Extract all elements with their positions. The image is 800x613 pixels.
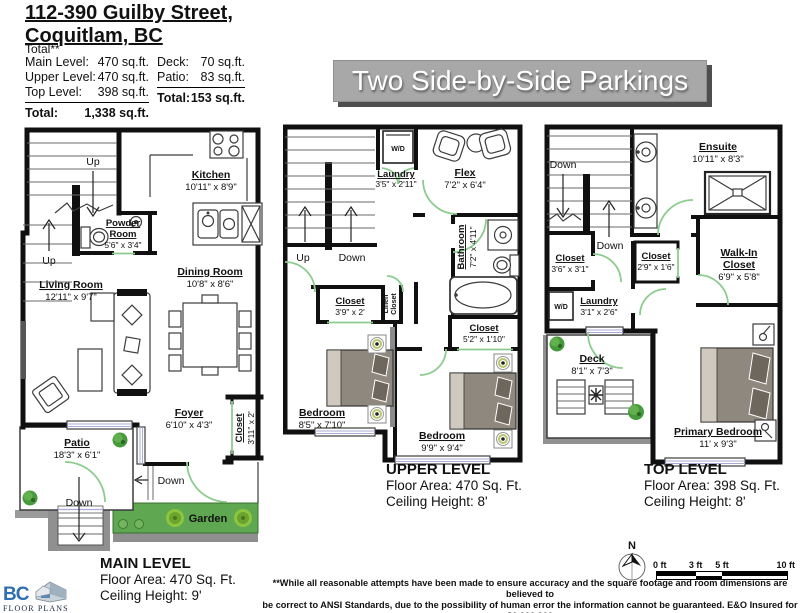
area-total-value: 153 sq.ft. bbox=[191, 91, 245, 106]
powder-dims: 5'6" x 3'4" bbox=[104, 240, 141, 250]
garden-plant bbox=[234, 509, 252, 527]
scale-tick: 3 ft bbox=[689, 560, 703, 570]
area-row: Patio: 83 sq.ft. bbox=[157, 70, 245, 85]
vanity-sinks bbox=[634, 134, 657, 228]
area-label: Deck: bbox=[157, 55, 189, 70]
upper-level-plan: Up Down W/D bbox=[283, 122, 523, 470]
scale-tick: 0 ft bbox=[653, 560, 667, 570]
level-title: UPPER LEVEL bbox=[386, 462, 522, 478]
deck-label: Deck bbox=[579, 353, 604, 365]
walkin-label: Walk-In bbox=[721, 247, 758, 259]
disclaimer-line: be correct to ANSI Standards, due to the… bbox=[262, 600, 798, 613]
powder-label2: Room bbox=[110, 229, 137, 240]
area-label: Main Level: bbox=[25, 55, 89, 70]
closet-label: Closet bbox=[234, 413, 245, 443]
disclaimer-line: **While all reasonable attempts have bee… bbox=[262, 578, 798, 600]
scale-bar: 0 ft 3 ft 5 ft 10 ft bbox=[656, 560, 788, 580]
area-row: Top Level: 398 sq.ft. bbox=[25, 85, 149, 100]
area-value: 70 sq.ft. bbox=[201, 55, 245, 70]
main-level-footer: MAIN LEVEL Floor Area: 470 Sq. Ft. Ceili… bbox=[100, 556, 236, 604]
laundry-dims: 3'5" x 2'11" bbox=[375, 179, 416, 189]
area-row: Deck: 70 sq.ft. bbox=[157, 55, 245, 70]
bathroom-sink-icon bbox=[488, 220, 518, 250]
svg-text:W/D: W/D bbox=[391, 146, 405, 153]
potlight-icon bbox=[368, 335, 386, 353]
dining-label: Dining Room bbox=[177, 266, 242, 278]
dining-dims: 10'8" x 8'6" bbox=[187, 279, 234, 290]
closet-label: Closet bbox=[335, 296, 365, 307]
compass-north-label: N bbox=[612, 540, 652, 552]
area-label: Upper Level: bbox=[25, 70, 96, 85]
walkin-label2: Closet bbox=[723, 259, 756, 271]
plant bbox=[23, 491, 38, 506]
bed bbox=[701, 348, 773, 422]
garden-plant bbox=[166, 509, 184, 527]
area-value: 398 sq.ft. bbox=[98, 85, 149, 100]
up-label: Up bbox=[86, 156, 100, 168]
kitchen-dims: 10'11" x 8'9" bbox=[185, 182, 236, 193]
area-value: 470 sq.ft. bbox=[98, 55, 149, 70]
bed bbox=[450, 373, 516, 429]
plant bbox=[628, 404, 644, 420]
level-area: Floor Area: 470 Sq. Ft. bbox=[100, 572, 236, 588]
bc-floor-plans-logo: BC FLOOR PLANS bbox=[3, 579, 74, 613]
bedroom-label: Bedroom bbox=[299, 407, 345, 419]
primary-bedroom-label: Primary Bedroom bbox=[674, 426, 762, 438]
parking-banner: Two Side-by-Side Parkings bbox=[333, 60, 707, 102]
laundry-label: Laundry bbox=[580, 296, 618, 307]
level-title: MAIN LEVEL bbox=[100, 556, 236, 572]
area-table-right: Deck: 70 sq.ft. Patio: 83 sq.ft. Total: … bbox=[157, 55, 245, 106]
interior-stairs bbox=[23, 143, 117, 301]
closet-dims: 2'9" x 1'6" bbox=[637, 262, 674, 272]
area-value: 470 sq.ft. bbox=[98, 70, 149, 85]
level-ceiling: Ceiling Height: 8' bbox=[644, 494, 780, 510]
tv-unit bbox=[21, 321, 26, 379]
down-label: Down bbox=[550, 159, 577, 171]
area-row: Upper Level: 470 sq.ft. bbox=[25, 70, 149, 85]
plant bbox=[550, 337, 565, 352]
main-level-plan: Garden bbox=[15, 125, 265, 555]
interior-stairs bbox=[547, 136, 632, 237]
garden-area: Garden bbox=[113, 503, 258, 533]
disclaimer: **While all reasonable attempts have bee… bbox=[262, 578, 798, 613]
scale-tick: 5 ft bbox=[715, 560, 729, 570]
area-label: Top Level: bbox=[25, 85, 82, 100]
scale-tick: 10 ft bbox=[776, 560, 795, 570]
linen-label2: Closet bbox=[391, 293, 398, 315]
coffee-table bbox=[78, 349, 102, 391]
primary-bedroom-dims: 11' x 9'3" bbox=[699, 439, 736, 450]
bathtub-icon bbox=[450, 277, 517, 314]
up-label: Up bbox=[42, 255, 56, 267]
dining-table bbox=[169, 295, 251, 375]
top-level-footer: TOP LEVEL Floor Area: 398 Sq. Ft. Ceilin… bbox=[644, 462, 780, 510]
garden-label: Garden bbox=[189, 513, 228, 525]
area-label: Patio: bbox=[157, 70, 189, 85]
area-total-row: Total: 1,338 sq.ft. bbox=[25, 103, 149, 121]
potlight-icon bbox=[494, 430, 512, 448]
down-label: Down bbox=[158, 475, 185, 487]
potlight-icon bbox=[368, 405, 386, 423]
closet-dims: 3'6" x 3'1" bbox=[551, 264, 588, 274]
logo-abbr: BC bbox=[3, 586, 28, 603]
bedroom-dims: 8'5" x 7'10" bbox=[299, 420, 346, 431]
scale-labels: 0 ft 3 ft 5 ft 10 ft bbox=[656, 560, 788, 571]
closet-dims: 3'11" x 2' bbox=[246, 411, 256, 445]
address-line-1: 112-390 Guilby Street, bbox=[25, 2, 233, 25]
down-label: Down bbox=[66, 497, 93, 509]
bathroom-dims: 7'2" x 4'11" bbox=[468, 226, 478, 267]
closet-label: Closet bbox=[555, 253, 585, 264]
up-label: Up bbox=[296, 252, 310, 264]
area-total-value: 1,338 sq.ft. bbox=[84, 106, 149, 121]
ensuite-dims: 10'11" x 8'3" bbox=[692, 154, 743, 165]
area-table-left: Main Level: 470 sq.ft. Upper Level: 470 … bbox=[25, 55, 149, 121]
bathroom-label: Bathroom bbox=[456, 225, 467, 270]
foyer-label: Foyer bbox=[175, 407, 204, 419]
living-dims: 12'11" x 9'7" bbox=[45, 292, 96, 303]
level-area: Floor Area: 470 Sq. Ft. bbox=[386, 478, 522, 494]
powder-label: Powder bbox=[106, 218, 141, 229]
closet-dims: 5'2" x 1'10" bbox=[463, 334, 505, 344]
area-total-row: Total: 153 sq.ft. bbox=[157, 88, 245, 106]
closet-label: Closet bbox=[641, 251, 671, 262]
patio-label: Patio bbox=[64, 437, 90, 449]
shower-icon bbox=[705, 172, 770, 214]
level-ceiling: Ceiling Height: 9' bbox=[100, 588, 236, 604]
area-row: Main Level: 470 sq.ft. bbox=[25, 55, 149, 70]
closet-dims: 3'9" x 2' bbox=[335, 307, 365, 317]
floor-plan-sheet: 112-390 Guilby Street, Coquitlam, BC Tot… bbox=[0, 0, 800, 613]
level-area: Floor Area: 398 Sq. Ft. bbox=[644, 478, 780, 494]
stove-icon bbox=[210, 131, 243, 158]
potlight-icon bbox=[494, 354, 512, 372]
armchair bbox=[32, 376, 70, 414]
linen-label: Linen bbox=[383, 295, 390, 314]
flex-chairs bbox=[432, 128, 512, 163]
plant bbox=[113, 433, 128, 448]
down-label: Down bbox=[339, 252, 366, 264]
foyer-dims: 6'10" x 4'3" bbox=[166, 420, 213, 431]
svg-text:W/D: W/D bbox=[554, 304, 568, 311]
ensuite-label: Ensuite bbox=[699, 141, 737, 153]
total-note: Total** bbox=[25, 42, 60, 56]
living-label: Living Room bbox=[39, 279, 103, 291]
logo-house-icon bbox=[28, 579, 74, 603]
logo-name: FLOOR PLANS bbox=[3, 604, 74, 613]
flex-dims: 7'2" x 6'4" bbox=[444, 180, 486, 191]
level-ceiling: Ceiling Height: 8' bbox=[386, 494, 522, 510]
kitchen-label: Kitchen bbox=[192, 169, 231, 181]
deck-dims: 8'1" x 7'3" bbox=[571, 366, 613, 377]
area-value: 83 sq.ft. bbox=[201, 70, 245, 85]
area-total-label: Total: bbox=[25, 106, 58, 121]
closet-label: Closet bbox=[469, 323, 499, 334]
level-title: TOP LEVEL bbox=[644, 462, 780, 478]
flex-label: Flex bbox=[454, 167, 475, 179]
patio-dims: 18'3" x 6'1" bbox=[54, 450, 101, 461]
bush bbox=[119, 520, 128, 529]
down-label: Down bbox=[597, 240, 624, 252]
area-total-label: Total: bbox=[157, 91, 190, 106]
bedroom-dims: 9'9" x 9'4" bbox=[421, 443, 463, 454]
bedroom-label: Bedroom bbox=[419, 430, 465, 442]
laundry-dims: 3'1" x 2'6" bbox=[580, 307, 617, 317]
upper-level-footer: UPPER LEVEL Floor Area: 470 Sq. Ft. Ceil… bbox=[386, 462, 522, 510]
walkin-dims: 6'9" x 5'8" bbox=[718, 272, 760, 283]
toilet-icon bbox=[494, 255, 520, 276]
washer-dryer-icon: W/D bbox=[549, 292, 573, 320]
bush bbox=[135, 520, 144, 529]
top-level-plan: Down Down W/D bbox=[543, 122, 795, 472]
washer-dryer-icon: W/D bbox=[383, 131, 413, 163]
bed bbox=[327, 350, 393, 406]
